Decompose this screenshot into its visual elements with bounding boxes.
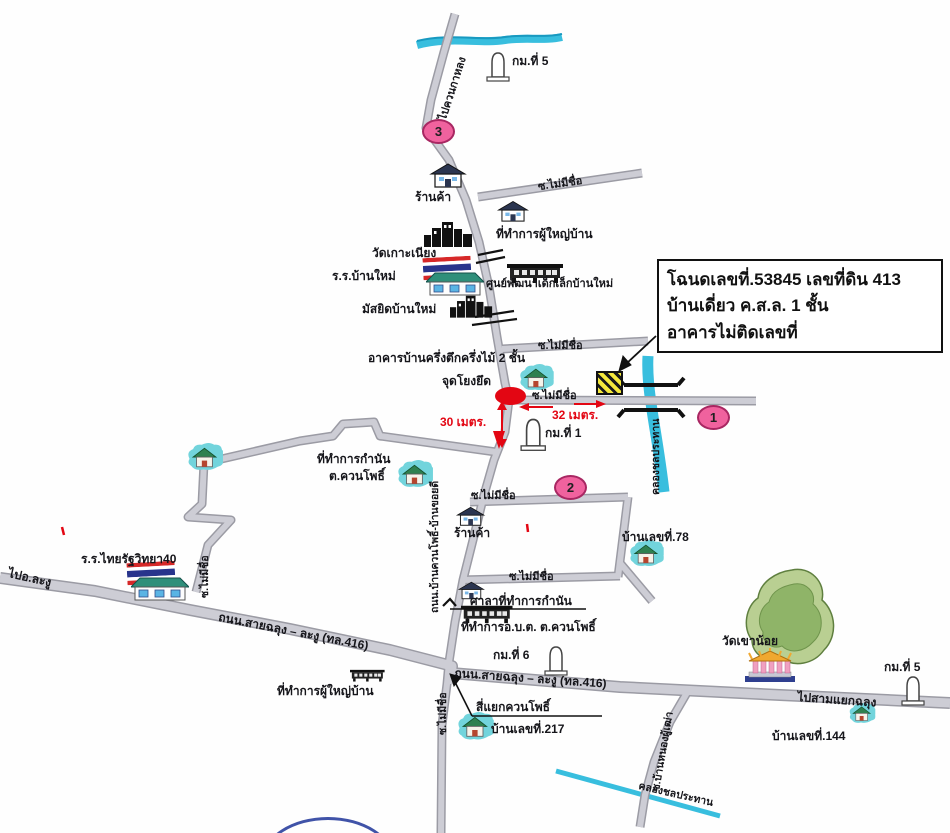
label-canal-right: คลองชลประทาน (650, 419, 663, 495)
km-post-6-icon (545, 647, 567, 675)
label-house-217: บ้านเลขที่.217 (491, 722, 564, 737)
label-soi-noname-3: ซ.ไม่มีชื่อ (532, 390, 577, 404)
label-soi-noname-5: ซ.ไม่มีชื่อ (509, 571, 554, 585)
label-wat-ko-niang: วัดเกาะเนียง (372, 246, 436, 261)
deed-line-1: โฉนดเลขที่.53845 เลขที่ดิน 413 (667, 267, 933, 293)
km-post-5-top-icon (487, 53, 509, 81)
km-post-5-right-icon (902, 677, 924, 705)
label-wat-khao-noi: วัดเขาน้อย (722, 634, 778, 649)
school-thairath-icon (131, 578, 189, 600)
label-village-headman-top: ที่ทำการผู้ใหญ่บ้าน (496, 227, 593, 242)
label-soi-noname-6: ซ.ไม่มีชื่อ (199, 555, 212, 598)
deed-line-2: บ้านเดี่ยว ค.ส.ล. 1 ชั้น (667, 293, 933, 319)
label-shop-top: ร้านค้า (415, 190, 451, 205)
km-post-1-icon (521, 420, 545, 451)
village-headman-bottom-icon (350, 670, 385, 682)
label-half-building: อาคารบ้านครึ่งตึกครึ่งไม้ 2 ชั้น (368, 351, 525, 366)
map-canvas: โฉนดเลขที่.53845 เลขที่ดิน 413 บ้านเดี่ย… (0, 0, 950, 833)
label-measure-30m: 30 เมตร. (440, 415, 486, 430)
village-headman-top-icon (499, 202, 528, 222)
tie-point-house-icon (520, 364, 555, 390)
label-km5-right: กม.ที่ 5 (884, 660, 920, 675)
label-sao-office: ที่ทำการอ.บ.ต. ต.ควนโพธิ์ (461, 620, 596, 635)
route-marker-3: 3 (422, 119, 455, 144)
label-village-headman-bottom: ที่ทำการผู้ใหญ่บ้าน (277, 684, 374, 699)
label-school-thairath: ร.ร.ไทยรัฐวิทยา40 (81, 552, 176, 567)
label-kamnan-office-2: ต.ควนโพธิ์ (329, 469, 385, 484)
label-tie-point: จุดโยงยึด (442, 374, 491, 389)
label-kamnan-office-1: ที่ทำการกำนัน (317, 452, 390, 467)
label-soi-noname-2: ซ.ไม่มีชื่อ (538, 340, 583, 354)
label-shop-mid: ร้านค้า (454, 526, 490, 541)
wat-ko-niang-icon (424, 222, 472, 247)
label-road-vertical: ถนน.บ้านควนโพธิ์-บ้านขอยดี (429, 481, 442, 613)
deed-line-3: อาคารไม่ติดเลขที่ (667, 320, 933, 346)
kamnan-left-house-icon (188, 443, 224, 470)
label-sala-kamnan: ศาลาที่ทำการกำนัน (470, 594, 572, 609)
measurement-graphics (62, 400, 606, 535)
deed-info-box: โฉนดเลขที่.53845 เลขที่ดิน 413 บ้านเดี่ย… (657, 259, 943, 353)
route-marker-1: 1 (697, 405, 730, 430)
label-school-ban-mai: ร.ร.บ้านใหม่ (332, 269, 396, 284)
label-measure-32m: 32 เมตร. (552, 408, 598, 423)
label-soi-noname-4: ซ.ไม่มีชื่อ (471, 490, 516, 504)
label-khuan-pho-intersection: สี่แยกควนโพธิ์ (476, 700, 550, 715)
school-ban-mai-icon (426, 273, 484, 295)
shop-top-icon (431, 164, 465, 187)
label-house-144: บ้านเลขที่.144 (772, 729, 845, 744)
label-km5-top: กม.ที่ 5 (512, 54, 548, 69)
hill (746, 569, 833, 663)
route-marker-2: 2 (554, 475, 587, 500)
label-soi-noname-7: ซ.ไม่มีชื่อ (437, 692, 450, 735)
label-mosque-ban-mai: มัสยิดบ้านใหม่ (362, 302, 436, 317)
subject-plot-hatched (596, 371, 623, 395)
label-km6: กม.ที่ 6 (493, 648, 529, 663)
mosque-ban-mai-icon (450, 296, 492, 318)
label-km1: กม.ที่ 1 (545, 426, 581, 441)
label-child-dev-center: ศูนย์พัฒนาเด็กเล็กบ้านใหม่ (486, 278, 613, 292)
tie-point-dot (495, 387, 526, 405)
label-house-78: บ้านเลขที่.78 (622, 530, 689, 545)
